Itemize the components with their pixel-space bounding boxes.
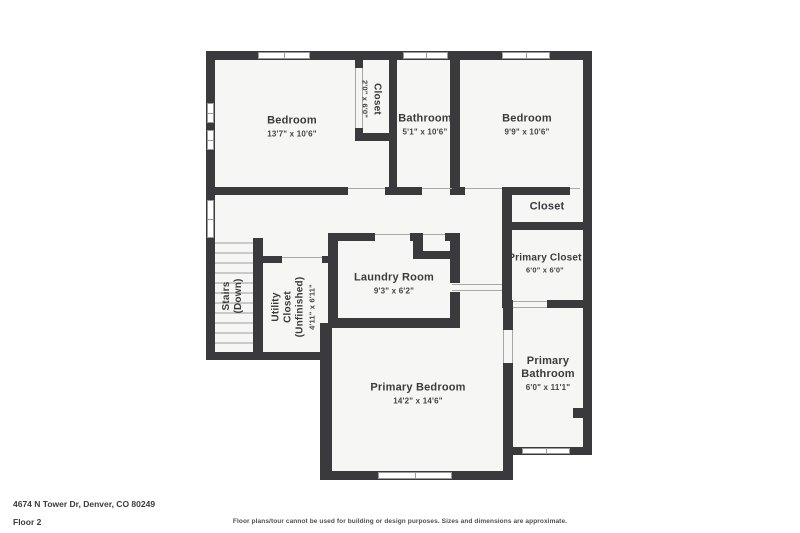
door-opening-line xyxy=(570,188,580,189)
wall xyxy=(503,308,513,330)
room-name: Closet xyxy=(283,277,295,338)
room-dims: 13'7" x 10'6" xyxy=(267,130,317,140)
room-dims: 9'9" x 10'6" xyxy=(502,128,552,138)
wall xyxy=(452,187,465,195)
room-label-utility-closet: Utility Closet (Unfinished) 4'11" x 6'11… xyxy=(271,277,318,338)
wall xyxy=(206,352,332,360)
wall xyxy=(502,222,592,230)
room-label-bathroom: Bathroom 5'1" x 10'6" xyxy=(398,113,452,138)
disclaimer-text: Floor plans/tour cannot be used for buil… xyxy=(0,518,800,525)
room-label-bedroom1: Bedroom 13'7" x 10'6" xyxy=(267,115,317,140)
stair-tread xyxy=(215,272,253,274)
room-dims: 6'0" x 11'1" xyxy=(521,383,575,393)
wall xyxy=(450,233,460,283)
room-name: (Unfinished) xyxy=(295,277,307,338)
wall xyxy=(583,51,592,455)
floor-plan-canvas: Bedroom 13'7" x 10'6" Closet 2'0" x 6'0"… xyxy=(0,0,800,533)
stair-tread xyxy=(215,342,253,344)
room-dims: 5'1" x 10'6" xyxy=(398,128,452,138)
window-symbol xyxy=(207,130,214,150)
door-opening-line xyxy=(423,234,445,235)
door-opening-line xyxy=(513,307,547,308)
window-symbol xyxy=(502,52,550,59)
window-mullion xyxy=(415,473,416,478)
door-opening-line xyxy=(282,257,322,258)
room-name: Bedroom xyxy=(267,115,317,128)
room-name: Bathroom xyxy=(521,368,575,381)
address-text: 4674 N Tower Dr, Denver, CO 80249 xyxy=(13,499,155,509)
wall xyxy=(547,300,592,308)
window-symbol xyxy=(403,52,448,59)
room-label-stairs: Stairs (Down) xyxy=(221,278,245,313)
room-name: Laundry Room xyxy=(354,272,434,285)
wall xyxy=(355,60,363,68)
room-name: Primary xyxy=(521,355,575,368)
window-mullion xyxy=(546,449,547,453)
room-name: Closet xyxy=(371,80,383,118)
door-opening-line xyxy=(348,188,385,189)
room-name: Bedroom xyxy=(502,113,552,126)
window-mullion xyxy=(284,53,285,58)
stair-tread xyxy=(215,252,253,254)
room-label-primary-bedroom: Primary Bedroom 14'2" x 14'6" xyxy=(370,382,465,407)
room-label-primary-closet: Primary Closet 6'0" x 6'0" xyxy=(508,253,581,276)
window-mullion xyxy=(426,53,427,58)
window-mullion xyxy=(208,219,213,220)
room-label-closet1: Closet 2'0" x 6'0" xyxy=(360,80,383,118)
wall xyxy=(502,300,513,308)
wall xyxy=(206,187,348,195)
wall xyxy=(503,363,513,480)
door-opening-line xyxy=(513,301,547,302)
room-dims: 2'0" x 6'0" xyxy=(360,80,370,118)
room-name: Primary Closet xyxy=(508,253,581,265)
room-name: Stairs xyxy=(221,278,233,313)
room-dims: 6'0" x 6'0" xyxy=(508,266,581,276)
window-mullion xyxy=(208,140,213,141)
wall xyxy=(320,323,332,480)
room-name: Primary Bedroom xyxy=(370,382,465,395)
window-symbol xyxy=(258,52,310,59)
stair-tread xyxy=(215,332,253,334)
room-name: Bathroom xyxy=(398,113,452,126)
window-symbol xyxy=(378,472,452,479)
window-mullion xyxy=(526,53,527,58)
wall xyxy=(328,233,338,328)
wall xyxy=(502,187,570,195)
room-label-primary-bathroom: Primary Bathroom 6'0" x 11'1" xyxy=(521,355,575,393)
room-name: (Down) xyxy=(233,278,245,313)
wall xyxy=(322,256,338,263)
wall xyxy=(328,318,460,328)
door-opening-line xyxy=(465,188,502,189)
door-opening-line xyxy=(452,290,502,291)
wall xyxy=(389,60,397,195)
room-label-laundry: Laundry Room 9'3" x 6'2" xyxy=(354,272,434,297)
window-symbol xyxy=(207,200,214,238)
door-opening-line xyxy=(375,234,410,235)
room-name: Utility xyxy=(271,277,283,338)
door-opening xyxy=(503,330,513,363)
window-mullion xyxy=(208,113,213,114)
window-symbol xyxy=(207,103,214,123)
room-dims: 9'3" x 6'2" xyxy=(354,287,434,297)
wall xyxy=(253,238,263,360)
stair-tread xyxy=(215,242,253,244)
room-label-bedroom2: Bedroom 9'9" x 10'6" xyxy=(502,113,552,138)
stair-tread xyxy=(215,322,253,324)
window-symbol xyxy=(522,448,570,454)
room-name: Closet xyxy=(530,201,565,214)
wall xyxy=(385,187,422,195)
room-dims: 14'2" x 14'6" xyxy=(370,397,465,407)
wall xyxy=(573,408,583,418)
door-opening-line xyxy=(452,284,502,285)
room-label-closet2: Closet xyxy=(530,201,565,214)
room-dims: 4'11" x 6'11" xyxy=(308,277,318,338)
door-opening-line xyxy=(422,188,452,189)
stair-tread xyxy=(215,262,253,264)
